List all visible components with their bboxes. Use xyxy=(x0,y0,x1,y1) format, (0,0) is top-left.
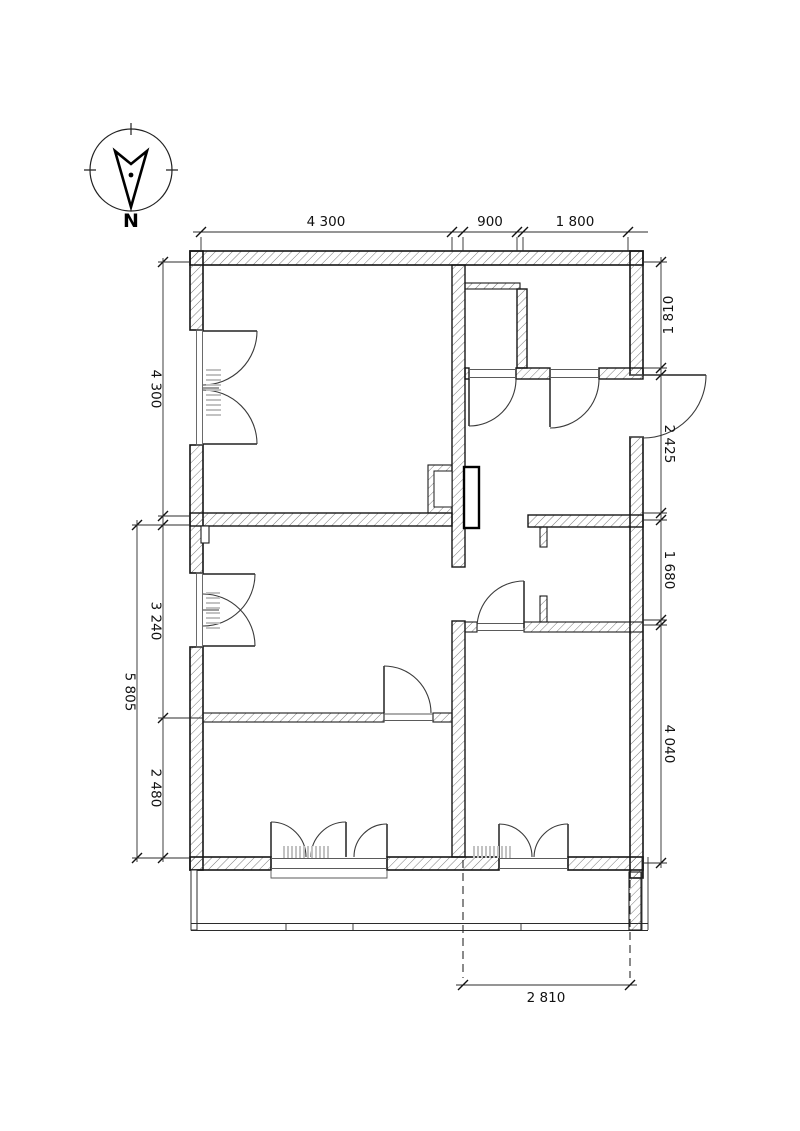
dim-top-2: 900 xyxy=(477,214,503,230)
wall-closet-top xyxy=(528,515,643,527)
dim-left-1: 4 300 xyxy=(148,370,164,409)
wall-right-lower xyxy=(630,437,643,878)
wall-hall-north-c xyxy=(599,368,643,379)
wall-closet-left-lower xyxy=(540,596,547,622)
shaft-interior xyxy=(434,471,452,507)
wall-living-south-a xyxy=(203,713,384,722)
wc-door-arc xyxy=(469,379,516,426)
north-indicator: N xyxy=(84,123,178,232)
north-label: N xyxy=(123,210,139,232)
bath-door-threshold xyxy=(550,370,599,378)
wall-wc-bath-divider xyxy=(517,289,527,368)
kitchen-door-threshold xyxy=(477,624,524,631)
bath-door-arc xyxy=(550,379,599,428)
wall-end-notch xyxy=(201,526,209,543)
duct-column xyxy=(464,467,479,528)
dim-ext-top xyxy=(201,237,628,251)
windows xyxy=(197,330,569,878)
wall-core-vertical-lower xyxy=(452,621,465,857)
floor-plan-svg: N xyxy=(0,0,800,1131)
wall-left-lower xyxy=(190,647,203,870)
wall-living-south-b xyxy=(433,713,452,722)
dim-top-3: 1 800 xyxy=(556,214,595,230)
dimension-bottom: 2 810 xyxy=(456,860,637,1006)
compass-center-dot xyxy=(129,173,134,178)
wall-bottom-left xyxy=(190,857,271,870)
wall-kitchen-top-a xyxy=(465,622,477,632)
dim-dashed-extensions xyxy=(463,860,630,978)
dim-right-2: 2 425 xyxy=(661,425,677,464)
balcony-railing xyxy=(191,924,648,932)
wall-bedroom-living-divider xyxy=(190,513,452,526)
wc-door-threshold xyxy=(469,370,516,378)
living-room-door-arc xyxy=(384,666,431,713)
north-arrow-icon xyxy=(115,151,147,207)
living-window-arcs xyxy=(203,574,255,646)
dimension-top: 4 300 900 1 800 xyxy=(193,214,648,251)
dim-left-3: 2 480 xyxy=(148,769,164,808)
wall-closet-left-upper xyxy=(540,527,547,547)
dim-right-1: 1 810 xyxy=(661,296,677,335)
wall-left-upper xyxy=(190,251,203,330)
wall-top xyxy=(190,251,643,265)
wall-left-middle xyxy=(190,445,203,573)
dim-left-2: 3 240 xyxy=(148,602,164,641)
dimension-right: 1 810 2 425 1 680 4 040 xyxy=(643,257,677,868)
dim-right-3: 1 680 xyxy=(661,551,677,590)
wall-hall-north-b xyxy=(516,368,550,379)
bedroom-window-frame xyxy=(197,330,203,445)
wall-bottom-middle xyxy=(387,857,499,870)
dim-left-overall: 5 805 xyxy=(122,673,138,712)
exterior-walls xyxy=(190,251,643,878)
dim-bottom-1: 2 810 xyxy=(527,990,566,1006)
dim-right-4: 4 040 xyxy=(661,725,677,764)
balcony-left-edge xyxy=(191,870,197,930)
living-room-door-threshold xyxy=(384,714,433,721)
floor-plan-sheet: N xyxy=(0,0,800,1131)
wall-right-upper xyxy=(630,251,643,375)
kitchen-window-frame xyxy=(499,859,568,869)
kitchen-door-arc xyxy=(477,581,524,628)
wall-hall-north-a xyxy=(465,368,469,379)
living-window-frame xyxy=(197,573,203,647)
dim-top-1: 4 300 xyxy=(307,214,346,230)
balcony-right-pier xyxy=(629,872,641,930)
wall-kitchen-top-b xyxy=(524,622,643,632)
partition-niche-top xyxy=(465,283,520,289)
entrance-door-jambs xyxy=(630,375,643,437)
balcony-door-frame xyxy=(271,859,387,879)
bedroom-window-arcs xyxy=(203,331,257,444)
interior-walls xyxy=(190,265,643,857)
wall-bottom-right xyxy=(568,857,643,870)
